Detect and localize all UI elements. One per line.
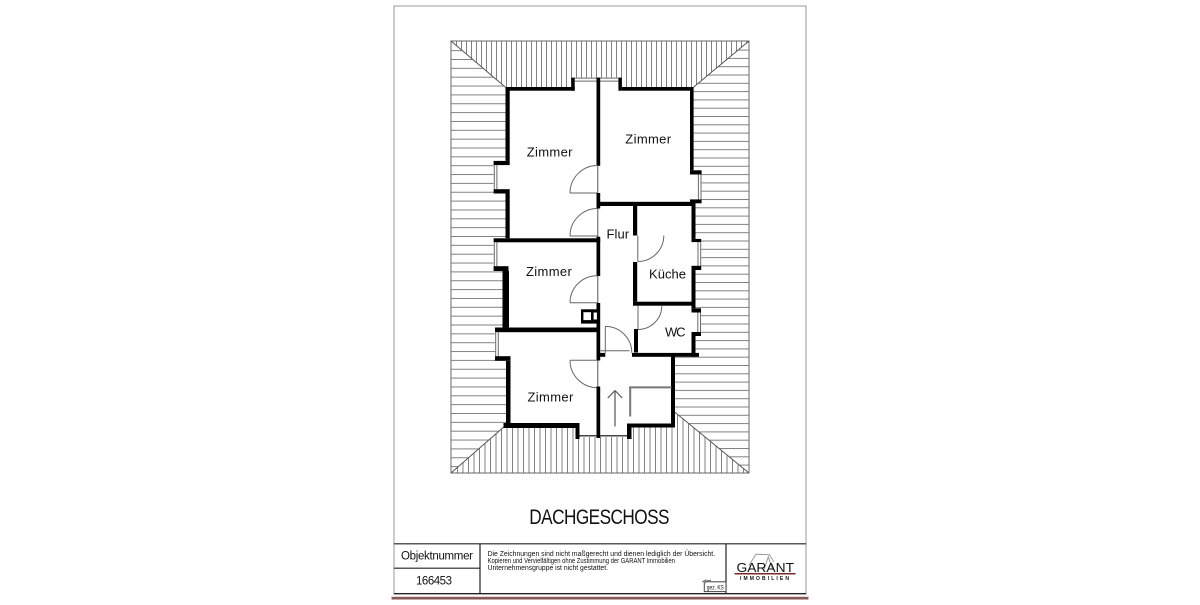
svg-text:WC: WC	[665, 325, 686, 340]
svg-text:Kopieren und Vervielfältigen o: Kopieren und Vervielfältigen ohne Zustim…	[488, 558, 675, 565]
svg-text:Zimmer: Zimmer	[527, 145, 573, 160]
svg-text:Zimmer: Zimmer	[625, 131, 671, 146]
svg-text:Flur: Flur	[607, 226, 630, 241]
svg-text:Küche: Küche	[649, 266, 686, 281]
svg-text:Objektnummer: Objektnummer	[401, 551, 473, 563]
svg-text:IMMOBILIEN: IMMOBILIEN	[740, 576, 789, 582]
svg-text:Die Zeichnungen sind nicht maß: Die Zeichnungen sind nicht maßgerecht un…	[488, 550, 716, 558]
svg-text:Zimmer: Zimmer	[526, 264, 572, 279]
svg-text:GARANT: GARANT	[737, 560, 795, 575]
svg-text:gez. KS: gez. KS	[707, 584, 724, 591]
svg-text:DACHGESCHOSS: DACHGESCHOSS	[529, 507, 669, 530]
svg-text:Unternehmensgruppe ist nicht g: Unternehmensgruppe ist nicht gestattet.	[488, 565, 608, 572]
svg-text:166453: 166453	[416, 576, 452, 588]
svg-text:Zimmer: Zimmer	[528, 390, 574, 405]
